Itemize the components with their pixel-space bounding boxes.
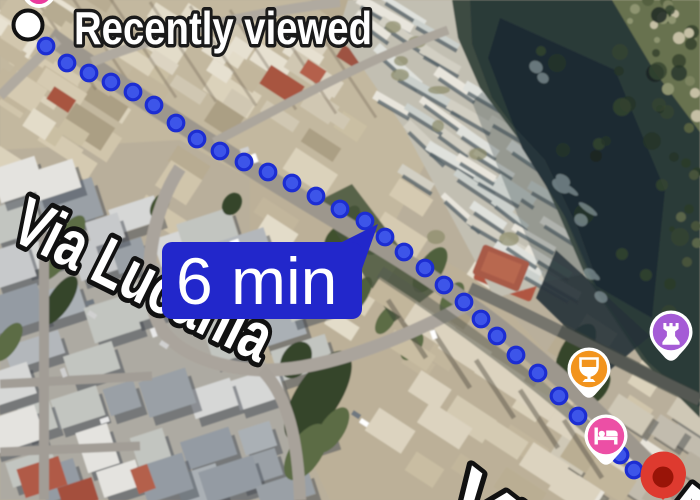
svg-text:Recently viewed: Recently viewed	[74, 2, 372, 54]
svg-text:6 min: 6 min	[176, 244, 337, 318]
